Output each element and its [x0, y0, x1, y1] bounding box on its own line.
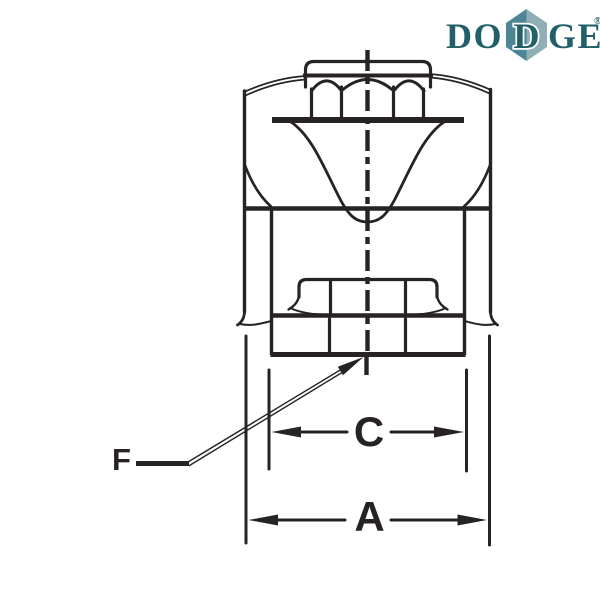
a-arrow-right [458, 515, 488, 526]
dimension-c: C [269, 370, 467, 471]
logo-text-mid: D [514, 16, 540, 56]
catalog-drawing-page: DO D GE ® [0, 0, 600, 600]
logo-text-post: GE [548, 16, 600, 56]
dim-label-f: F [112, 442, 131, 477]
nut-chamfer-arc-right [395, 81, 424, 91]
dim-label-a: A [354, 493, 384, 540]
skirt-hook-right [491, 311, 498, 325]
dim-label-c: C [354, 408, 384, 455]
shoulder-fillet-left [245, 164, 272, 207]
c-arrow-left [272, 427, 302, 438]
skirt-curve-right [465, 321, 496, 325]
shoulder-fillet-right [464, 164, 491, 207]
center-line [367, 50, 368, 375]
dodge-logo: DO D GE ® [446, 9, 600, 61]
c-arrow-right [434, 427, 464, 438]
technical-drawing-canvas: DO D GE ® [0, 0, 600, 600]
logo-text-pre: DO [446, 16, 503, 56]
nut-chamfer-arc-center [343, 80, 392, 90]
a-arrow-left [249, 515, 279, 526]
skirt-curve-left [240, 321, 272, 325]
f-leader-arrow [338, 357, 364, 375]
skirt-hook-left [238, 311, 245, 325]
f-leader-line-upper [188, 367, 346, 463]
registered-trademark: ® [594, 16, 600, 27]
nut-chamfer-arc-left [312, 81, 341, 91]
leader-f: F [112, 357, 364, 477]
